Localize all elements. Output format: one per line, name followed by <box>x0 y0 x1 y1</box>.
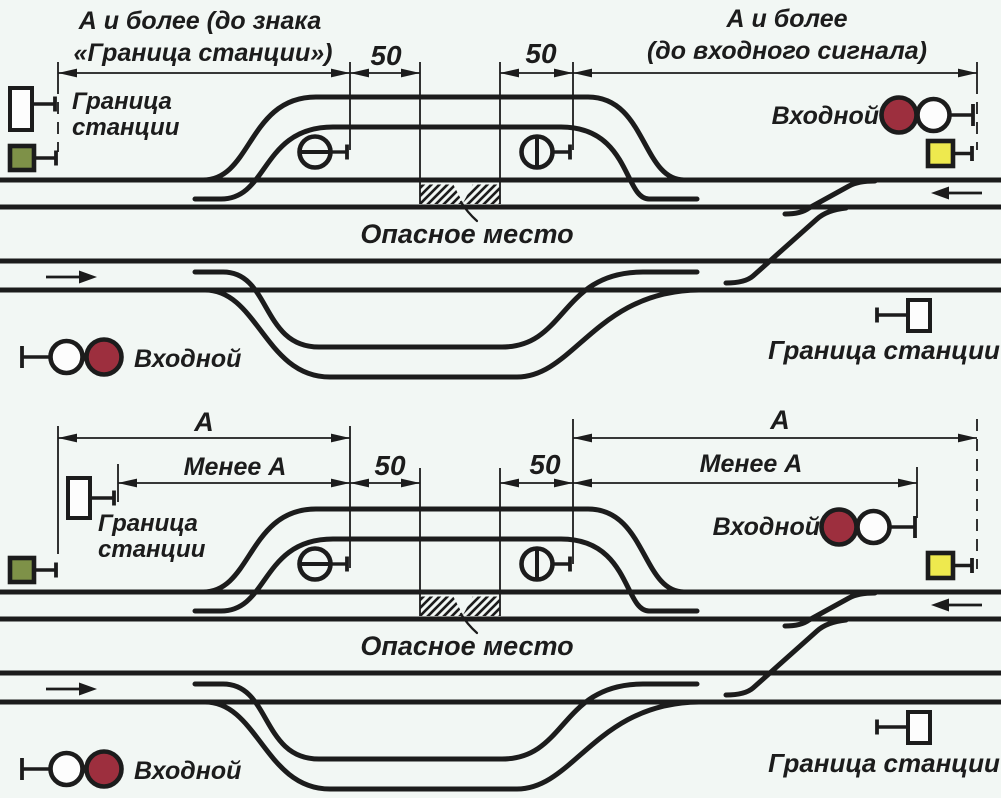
entrance-left-label: Входной <box>134 757 241 785</box>
dim-label-right-line1: А и более <box>726 5 848 33</box>
dim-label-50-right: 50 <box>525 38 557 69</box>
dim-label-right-line2: (до входного сигнала) <box>647 37 927 65</box>
dim-label-left-line2: «Граница станции») <box>74 39 333 67</box>
danger-zone-label: Опасное место <box>360 219 573 249</box>
boundary-right-label: Граница станции <box>768 748 1000 778</box>
dim-label-menee-left: Менее А <box>184 453 287 481</box>
boundary-left-label-line2: станции <box>72 114 180 141</box>
entrance-right-label: Входной <box>713 513 820 541</box>
dim-label-50-right: 50 <box>529 449 561 480</box>
boundary-left-label-line1: Граница <box>98 510 198 537</box>
dim-label-A-left: А <box>193 407 214 437</box>
dim-label-menee-right: Менее А <box>700 450 803 478</box>
dim-label-50-left: 50 <box>370 40 402 71</box>
railway-diagram-svg: А и более (до знака «Граница станции») 5… <box>0 0 1001 798</box>
railway-scheme-page: А и более (до знака «Граница станции») 5… <box>0 0 1001 798</box>
dim-label-50-left: 50 <box>374 450 406 481</box>
boundary-right-label: Граница станции <box>768 335 1000 365</box>
boundary-left-label-line2: станции <box>98 536 206 563</box>
dim-label-left-line1: А и более (до знака <box>78 7 322 35</box>
entrance-left-label: Входной <box>134 345 241 373</box>
entrance-right-label: Входной <box>772 102 879 130</box>
boundary-left-label-line1: Граница <box>72 88 172 115</box>
danger-zone-label: Опасное место <box>360 631 573 661</box>
dim-label-A-right: А <box>769 405 790 435</box>
